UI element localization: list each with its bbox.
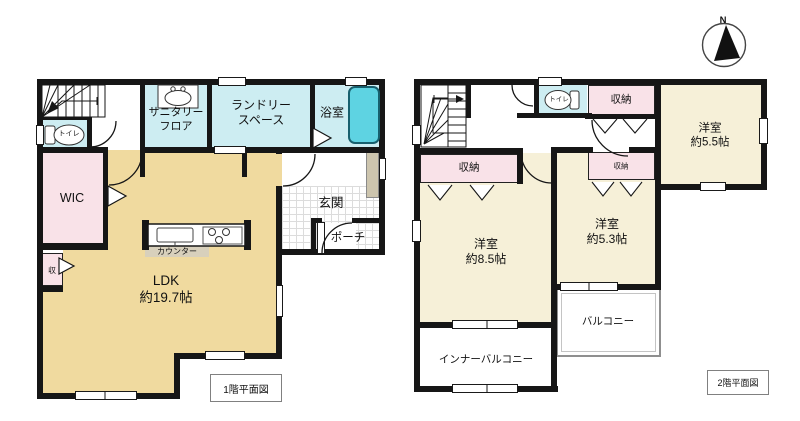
sink-icon	[158, 85, 198, 108]
label-room55: 洋室約5.5帖	[691, 122, 730, 151]
label-sanitary: サニタリーフロア	[149, 106, 204, 134]
compass-north-label: N	[720, 15, 727, 27]
kitchen-counter-icon	[148, 224, 245, 247]
label-toilet-1f: トイレ	[59, 131, 80, 140]
label-porch: ポーチ	[331, 231, 366, 245]
door-arc-hall	[283, 154, 315, 186]
door-arc-room85	[521, 152, 552, 183]
label-wic: WIC	[60, 191, 84, 207]
bath-door-icon	[313, 128, 331, 148]
floor-plan: サニタリーフロア ランドリースペース 浴室 トイレ WIC 収 カウンター LD…	[0, 0, 800, 421]
label-room85: 洋室約8.5帖	[466, 237, 507, 267]
label-storage-small: 収納	[614, 161, 629, 170]
caption-floor2: 2階平面図	[707, 370, 769, 395]
bathtub-icon	[349, 87, 379, 143]
caption-floor1: 1階平面図	[210, 374, 282, 402]
door-arc-ldk	[109, 152, 142, 185]
label-inner-balcony: インナーバルコニー	[439, 353, 533, 366]
label-balcony: バルコニー	[582, 315, 634, 328]
label-toilet-2f: トイレ	[549, 96, 569, 104]
label-laundry: ランドリースペース	[231, 98, 291, 128]
label-entrance: 玄関	[318, 196, 343, 212]
door-arc-toilet-2f	[512, 85, 533, 106]
plan-symbols	[0, 0, 800, 421]
label-room53: 洋室約5.3帖	[587, 217, 628, 247]
label-storage-top: 収納	[611, 93, 632, 106]
stairs-1f-icon	[42, 85, 105, 117]
label-counter: カウンター	[157, 247, 197, 257]
stairs-2f-icon	[421, 85, 466, 147]
label-ldk: LDK約19.7帖	[139, 273, 192, 307]
wic-door-icon	[108, 186, 126, 206]
closet-door-icon	[59, 258, 74, 274]
compass	[703, 24, 746, 67]
label-bath: 浴室	[320, 106, 344, 121]
label-closet-1f: 収	[48, 266, 56, 276]
label-storage-left: 収納	[459, 161, 480, 174]
door-arc-toilet-1f	[90, 121, 116, 147]
